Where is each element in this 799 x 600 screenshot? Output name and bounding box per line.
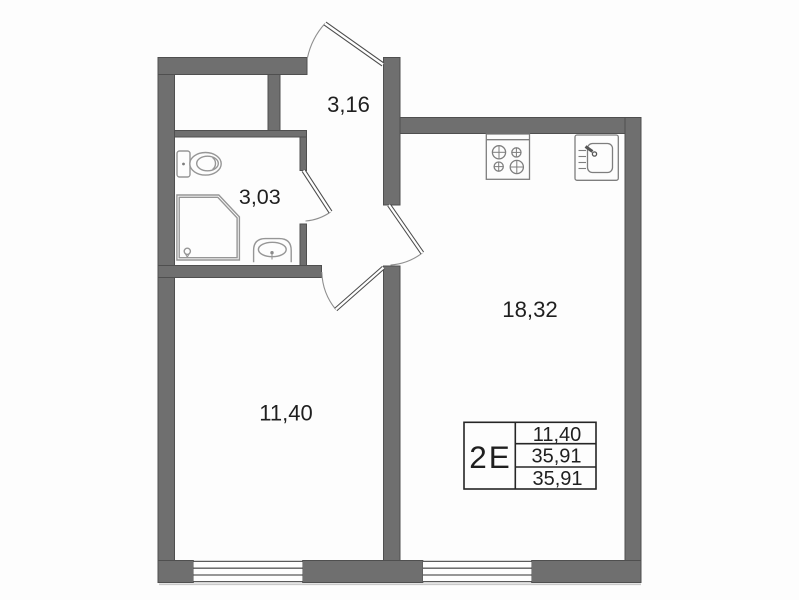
svg-text:11,40: 11,40: [259, 401, 312, 426]
svg-text:18,32: 18,32: [502, 297, 558, 322]
svg-text:35,91: 35,91: [532, 468, 582, 490]
svg-text:3,03: 3,03: [239, 185, 281, 209]
svg-text:2Е: 2Е: [469, 439, 512, 475]
svg-text:35,91: 35,91: [531, 445, 581, 467]
svg-text:3,16: 3,16: [327, 92, 370, 117]
svg-text:11,40: 11,40: [533, 424, 582, 446]
